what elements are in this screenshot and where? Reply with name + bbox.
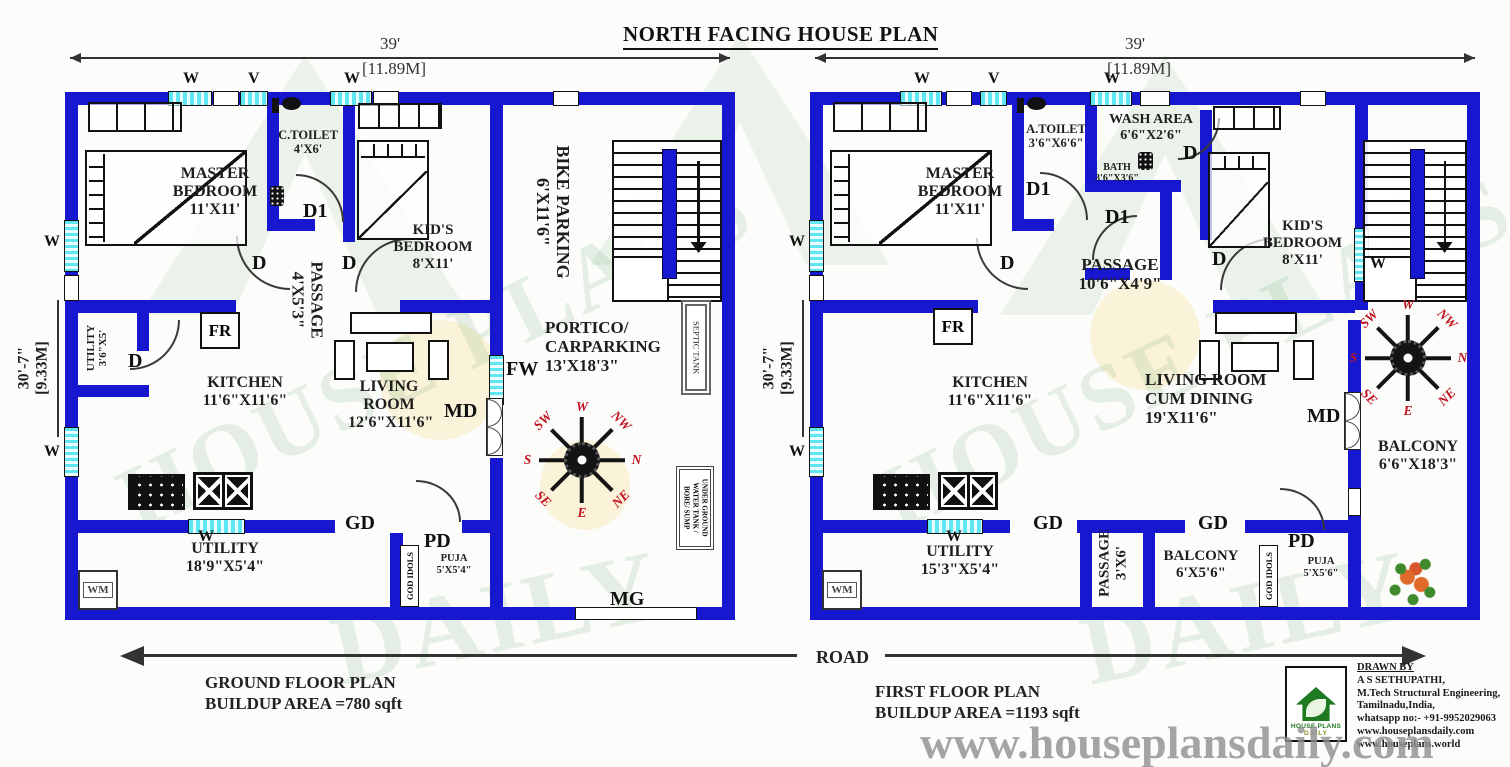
- page-title: NORTH FACING HOUSE PLAN: [623, 22, 938, 50]
- compass-rose: W NW N NE E SE S SW: [1350, 300, 1466, 416]
- sofa-icon: [1215, 312, 1297, 334]
- sofa-icon: [350, 312, 432, 334]
- god-idols-box: GOD IDOLS: [1259, 545, 1278, 607]
- room-kitchen: KITCHEN11'6"X11'6": [175, 374, 315, 410]
- floor-plan-sheet: HOUSE PLANS DAILY HOUSE PLANS DAILY NORT…: [0, 0, 1510, 767]
- washing-machine-icon: WM: [78, 570, 118, 610]
- door-tag: D: [252, 252, 266, 275]
- road-arrow-left-icon: [110, 646, 144, 666]
- room-passage-2: PASSAGE3'X6': [1097, 529, 1130, 597]
- ventilator: [980, 91, 1007, 106]
- window-tag: W: [44, 233, 60, 251]
- arrow-left-icon: [65, 53, 81, 63]
- room-bath: BATH3'6"X3'6": [1092, 162, 1142, 185]
- ventilator: [240, 91, 268, 106]
- sofa-icon: [334, 340, 355, 380]
- staircase: [1363, 140, 1467, 302]
- dim-height: 30'-7" [9.33M]: [760, 341, 795, 395]
- road-line: [132, 654, 797, 657]
- door-tag: MD: [444, 400, 477, 423]
- room-master-bedroom: MASTER BEDROOM11'X11': [160, 165, 270, 219]
- door-tag: PD: [1288, 530, 1315, 553]
- room-utility-nook: UTILITY3'6"X5': [85, 325, 109, 371]
- room-puja: PUJA5'X5'6": [1294, 556, 1348, 580]
- god-idols-box: GOD IDOLS: [400, 545, 419, 607]
- stove-icon: [193, 472, 253, 510]
- window: [64, 220, 79, 272]
- room-kids-bedroom: KID'S BEDROOM8'X11': [383, 222, 483, 273]
- door-arc: [1280, 488, 1325, 530]
- room-kids-bedroom: KID'S BEDROOM8'X11': [1255, 218, 1350, 269]
- window: [64, 427, 79, 477]
- door-tag: MD: [1307, 405, 1340, 428]
- underground-tank: UNDER GROUND WATER TANK / BORE/ SUMP: [676, 466, 714, 550]
- dimension-line: [802, 300, 804, 437]
- table-icon: [366, 342, 414, 372]
- door-tag: D: [128, 350, 142, 373]
- room-puja: PUJA5'X5'4": [425, 553, 483, 577]
- stair-direction-arrow: [697, 161, 700, 243]
- window: [1090, 91, 1132, 106]
- septic-tank: SEPTIC TANK: [681, 300, 711, 395]
- compass-rose: W NW N NE E SE S SW: [524, 402, 640, 518]
- door-tag: D: [1183, 142, 1197, 165]
- door-tag: GD: [1198, 512, 1228, 535]
- wardrobe-icon: [88, 102, 182, 132]
- room-passage: PASSAGE10'6"X4'9": [1060, 255, 1180, 293]
- sofa-icon: [428, 340, 449, 380]
- sofa-icon: [1293, 340, 1314, 380]
- toilet-icon: [1017, 98, 1024, 113]
- road-label: ROAD: [816, 646, 869, 669]
- window-tag: W: [344, 70, 360, 88]
- dim-width-ft: 39': [1125, 34, 1145, 54]
- door-arc: [416, 480, 461, 522]
- toilet-icon: [272, 98, 279, 113]
- room-bike-parking: BIKE PARKING6'X11'6": [532, 145, 572, 278]
- arrow-right-icon: [719, 53, 735, 63]
- dimension-line: [57, 300, 59, 437]
- window: [188, 519, 245, 534]
- drawn-by-label: DRAWN BY: [1357, 662, 1500, 675]
- door-tag: D1: [1026, 178, 1050, 201]
- room-living-dining: LIVING ROOM CUM DINING 19'X11'6": [1145, 370, 1280, 428]
- window-tag: W: [914, 70, 930, 88]
- door-tag: D1: [303, 200, 327, 223]
- room-master-bedroom: MASTER BEDROOM11'X11': [905, 165, 1015, 219]
- plant-icon: [1385, 552, 1441, 608]
- dim-width-m: [11.89M]: [362, 59, 426, 79]
- main-gate-tag: MG: [610, 588, 644, 611]
- compass-hub: [564, 442, 600, 478]
- wardrobe-icon: [358, 103, 442, 129]
- ground-floor-caption: GROUND FLOOR PLAN BUILDUP AREA =780 sqft: [205, 672, 402, 715]
- road-line: [885, 654, 1405, 657]
- main-door-icon: [486, 398, 503, 456]
- wardrobe-icon: [833, 102, 927, 132]
- ventilator-tag: V: [248, 70, 260, 88]
- room-utility: UTILITY15'3"X5'4": [895, 543, 1025, 579]
- window: [809, 220, 824, 272]
- door-tag: D: [1000, 252, 1014, 275]
- window-tag: W: [1104, 70, 1120, 88]
- door-tag: PD: [424, 530, 451, 553]
- arrow-right-icon: [1464, 53, 1480, 63]
- window: [809, 427, 824, 477]
- room-a-toilet: A.TOILET3'6"X6'6": [1018, 122, 1094, 150]
- room-kitchen: KITCHEN11'6"X11'6": [920, 374, 1060, 410]
- ventilator-tag: V: [988, 70, 1000, 88]
- stove-icon: [938, 472, 998, 510]
- stair-direction-arrow: [1444, 161, 1447, 243]
- toilet-icon: [282, 97, 301, 110]
- table-icon: [1231, 342, 1279, 372]
- dim-height: 30'-7" [9.33M]: [15, 341, 50, 395]
- door-tag: D: [1212, 248, 1226, 271]
- door-tag: GD: [345, 512, 375, 535]
- compass-hub: [1390, 340, 1426, 376]
- window-tag: W: [789, 443, 805, 461]
- toilet-icon: [1027, 97, 1046, 110]
- window-tag: W: [1370, 255, 1386, 273]
- washing-machine-icon: WM: [822, 570, 862, 610]
- room-balcony: BALCONY6'6"X18'3": [1362, 438, 1474, 474]
- staircase: [612, 140, 722, 302]
- fridge-icon: FR: [200, 312, 240, 349]
- door-tag: GD: [1033, 512, 1063, 535]
- geyser-icon: [270, 186, 284, 206]
- room-balcony-2: BALCONY6'X5'6": [1155, 548, 1247, 582]
- kitchen-counter-icon: [873, 474, 930, 510]
- dim-width-ft: 39': [380, 34, 400, 54]
- window-tag: FW: [506, 358, 538, 381]
- arrow-left-icon: [810, 53, 826, 63]
- watermark-url: www.houseplansdaily.com: [920, 716, 1434, 767]
- room-utility: UTILITY18'9"X5'4": [145, 540, 305, 576]
- window-tag: W: [44, 443, 60, 461]
- window-tag: W: [789, 233, 805, 251]
- fridge-icon: FR: [933, 308, 973, 345]
- door-tag: D1: [1105, 206, 1129, 229]
- room-portico: PORTICO/ CARPARKING 13'X18'3": [545, 318, 685, 376]
- window-tag: W: [183, 70, 199, 88]
- room-passage: PASSAGE4'X5'3": [288, 261, 325, 338]
- room-wash-area: WASH AREA6'6"X2'6": [1092, 112, 1210, 144]
- wardrobe-icon: [1213, 106, 1281, 130]
- door-tag: D: [342, 252, 356, 275]
- room-c-toilet: C.TOILET4'X6': [272, 128, 344, 156]
- author-name: A S SETHUPATHI,: [1357, 675, 1500, 688]
- room-living: LIVING ROOM12'6"X11'6": [348, 378, 430, 432]
- kitchen-counter-icon: [128, 474, 185, 510]
